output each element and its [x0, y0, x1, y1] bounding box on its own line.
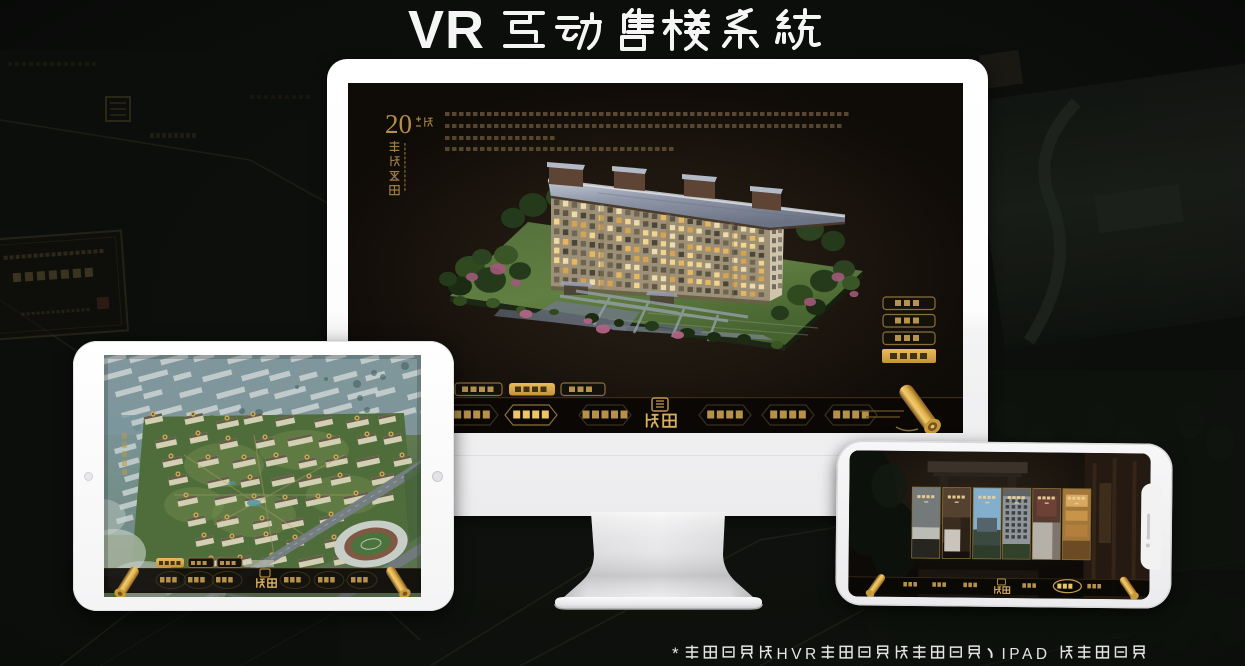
- svg-text:HVR: HVR: [777, 646, 820, 663]
- svg-text:IPAD: IPAD: [1002, 646, 1051, 663]
- svg-text:VR: VR: [408, 2, 485, 58]
- svg-text:*: *: [672, 644, 679, 663]
- svg-text:20: 20: [385, 109, 412, 139]
